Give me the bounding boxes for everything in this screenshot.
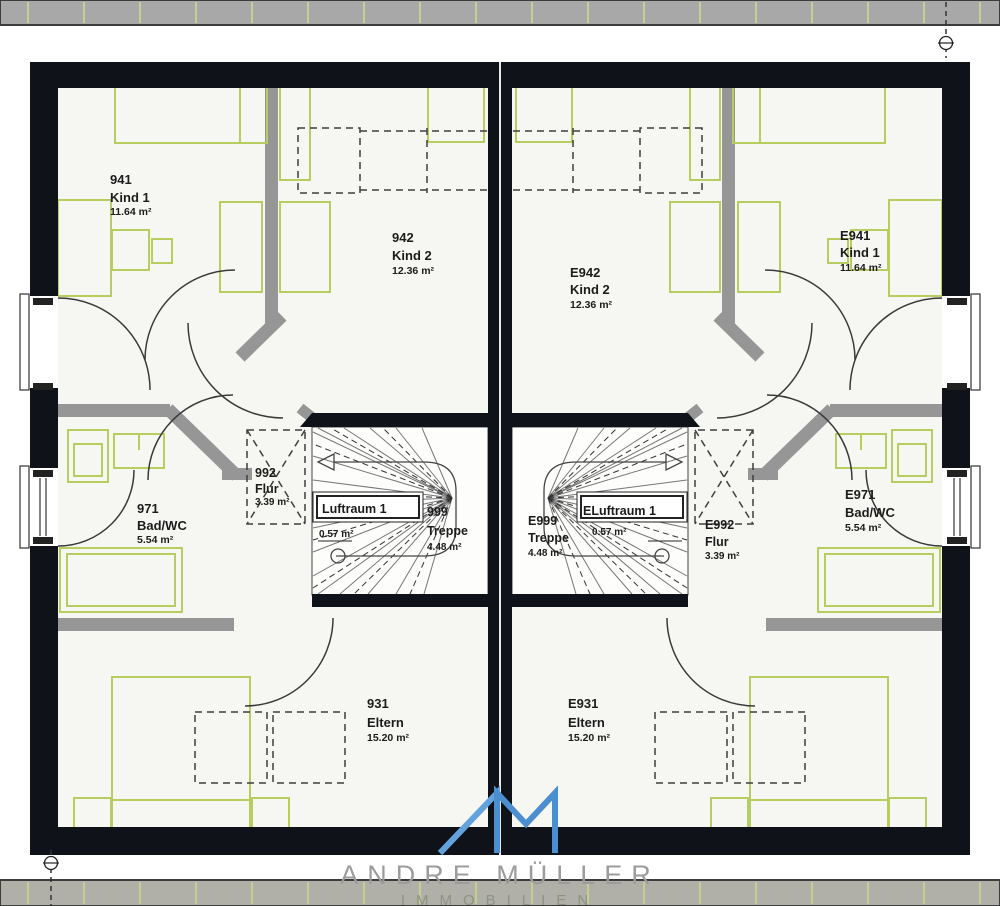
room-number: 931 xyxy=(367,696,389,711)
room-name: Treppe xyxy=(528,531,569,545)
luftraum-name: Luftraum 1 xyxy=(322,502,387,516)
luftraum-area: 0.57 m² xyxy=(592,527,627,538)
room-name: Kind 2 xyxy=(570,282,610,297)
floorplan-canvas: 941 Kind 1 11.64 m² 942 Kind 2 12.36 m² … xyxy=(0,0,1000,906)
logo-division-name: IMMOBILIEN xyxy=(401,892,599,906)
room-name: Kind 2 xyxy=(392,248,432,263)
room-number: E931 xyxy=(568,696,598,711)
room-area: 3.39 m² xyxy=(705,551,740,562)
room-area: 5.54 m² xyxy=(137,534,174,546)
logo-company-name: ANDRE MÜLLER xyxy=(340,860,660,890)
room-area: 15.20 m² xyxy=(367,732,410,744)
room-area: 5.54 m² xyxy=(845,522,882,534)
room-name: Eltern xyxy=(568,715,605,730)
room-area: 11.64 m² xyxy=(840,262,882,274)
room-number: E941 xyxy=(840,228,870,243)
room-number: 992 xyxy=(255,466,276,480)
room-number: 971 xyxy=(137,501,159,516)
luftraum-name: ELuftraum 1 xyxy=(583,504,656,518)
room-name: Kind 1 xyxy=(110,190,150,205)
room-area: 15.20 m² xyxy=(568,732,611,744)
luftraum-area: 0.57 m² xyxy=(319,529,354,540)
room-area: 4.48 m² xyxy=(528,548,563,559)
floorplan-page: 941 Kind 1 11.64 m² 942 Kind 2 12.36 m² … xyxy=(0,0,1000,906)
room-number: E992 xyxy=(705,518,734,532)
unit-left xyxy=(20,62,500,855)
room-name: Bad/WC xyxy=(845,505,895,520)
room-area: 4.48 m² xyxy=(427,542,462,553)
room-name: Flur xyxy=(705,535,729,549)
top-terrace-band xyxy=(0,0,1000,25)
room-number: E971 xyxy=(845,487,875,502)
room-area: 11.64 m² xyxy=(110,206,152,218)
room-name: Treppe xyxy=(427,524,468,538)
room-area: 12.36 m² xyxy=(392,265,435,277)
room-number: 999 xyxy=(427,505,448,519)
room-number: 941 xyxy=(110,172,132,187)
room-area: 12.36 m² xyxy=(570,299,613,311)
room-name: Bad/WC xyxy=(137,518,187,533)
room-number: E999 xyxy=(528,514,557,528)
room-area: 3.39 m² xyxy=(255,497,290,508)
room-name: Flur xyxy=(255,482,279,496)
room-number: 942 xyxy=(392,230,414,245)
room-number: E942 xyxy=(570,265,600,280)
room-name: Eltern xyxy=(367,715,404,730)
room-name: Kind 1 xyxy=(840,245,880,260)
